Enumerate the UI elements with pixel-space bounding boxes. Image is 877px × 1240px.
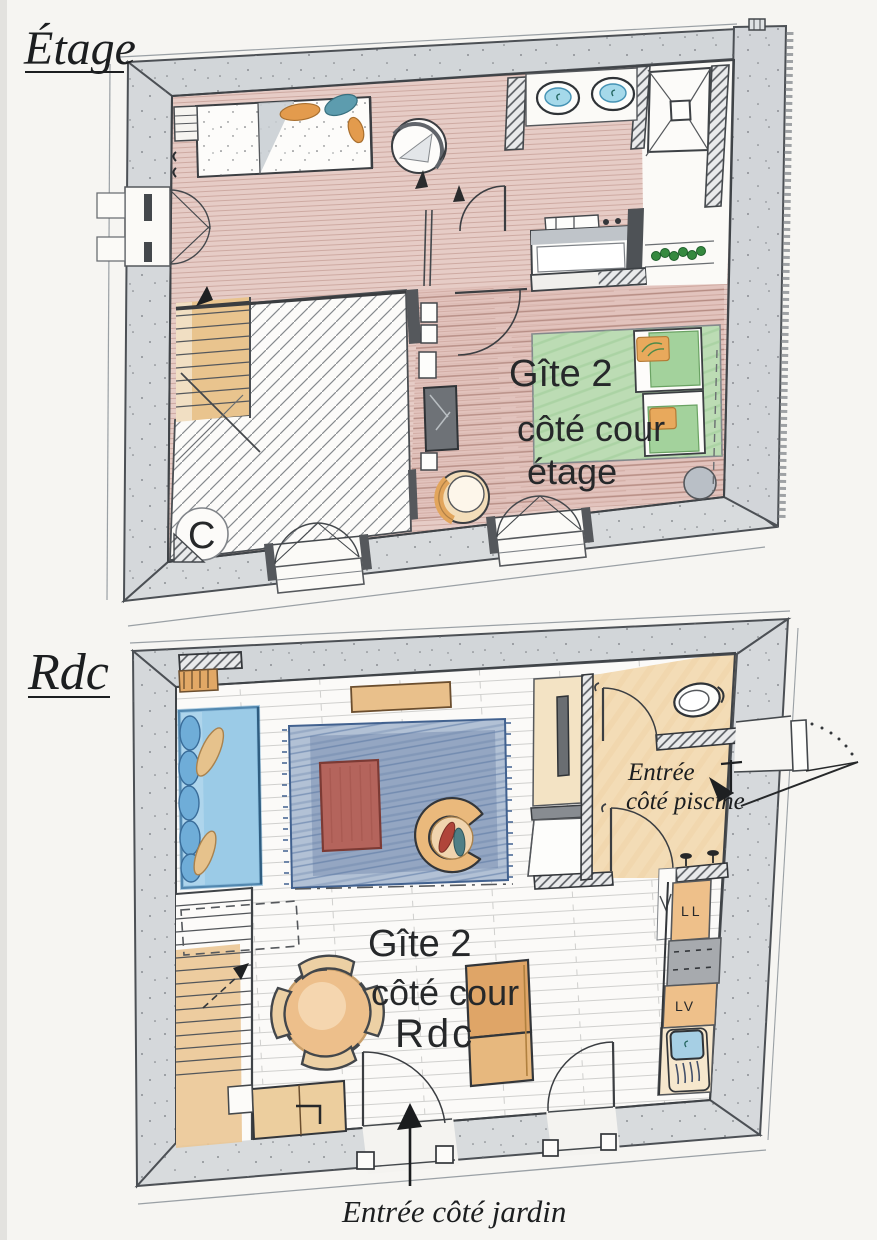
svg-text:côté cour: côté cour: [371, 972, 519, 1013]
svg-text:côté cour: côté cour: [517, 408, 665, 449]
svg-text:Gîte 2: Gîte 2: [509, 353, 613, 395]
svg-text:Étage: Étage: [23, 22, 136, 75]
svg-text:Entrée côté jardin: Entrée côté jardin: [341, 1194, 566, 1229]
svg-text:étage: étage: [527, 451, 617, 492]
svg-text:Rdc: Rdc: [27, 644, 109, 701]
svg-text:LL: LL: [681, 903, 703, 919]
svg-text:Entrée: Entrée: [627, 759, 695, 786]
svg-text:Gîte 2: Gîte 2: [368, 923, 472, 965]
svg-text:Rdc: Rdc: [395, 1012, 475, 1056]
svg-text:LV: LV: [675, 998, 695, 1014]
